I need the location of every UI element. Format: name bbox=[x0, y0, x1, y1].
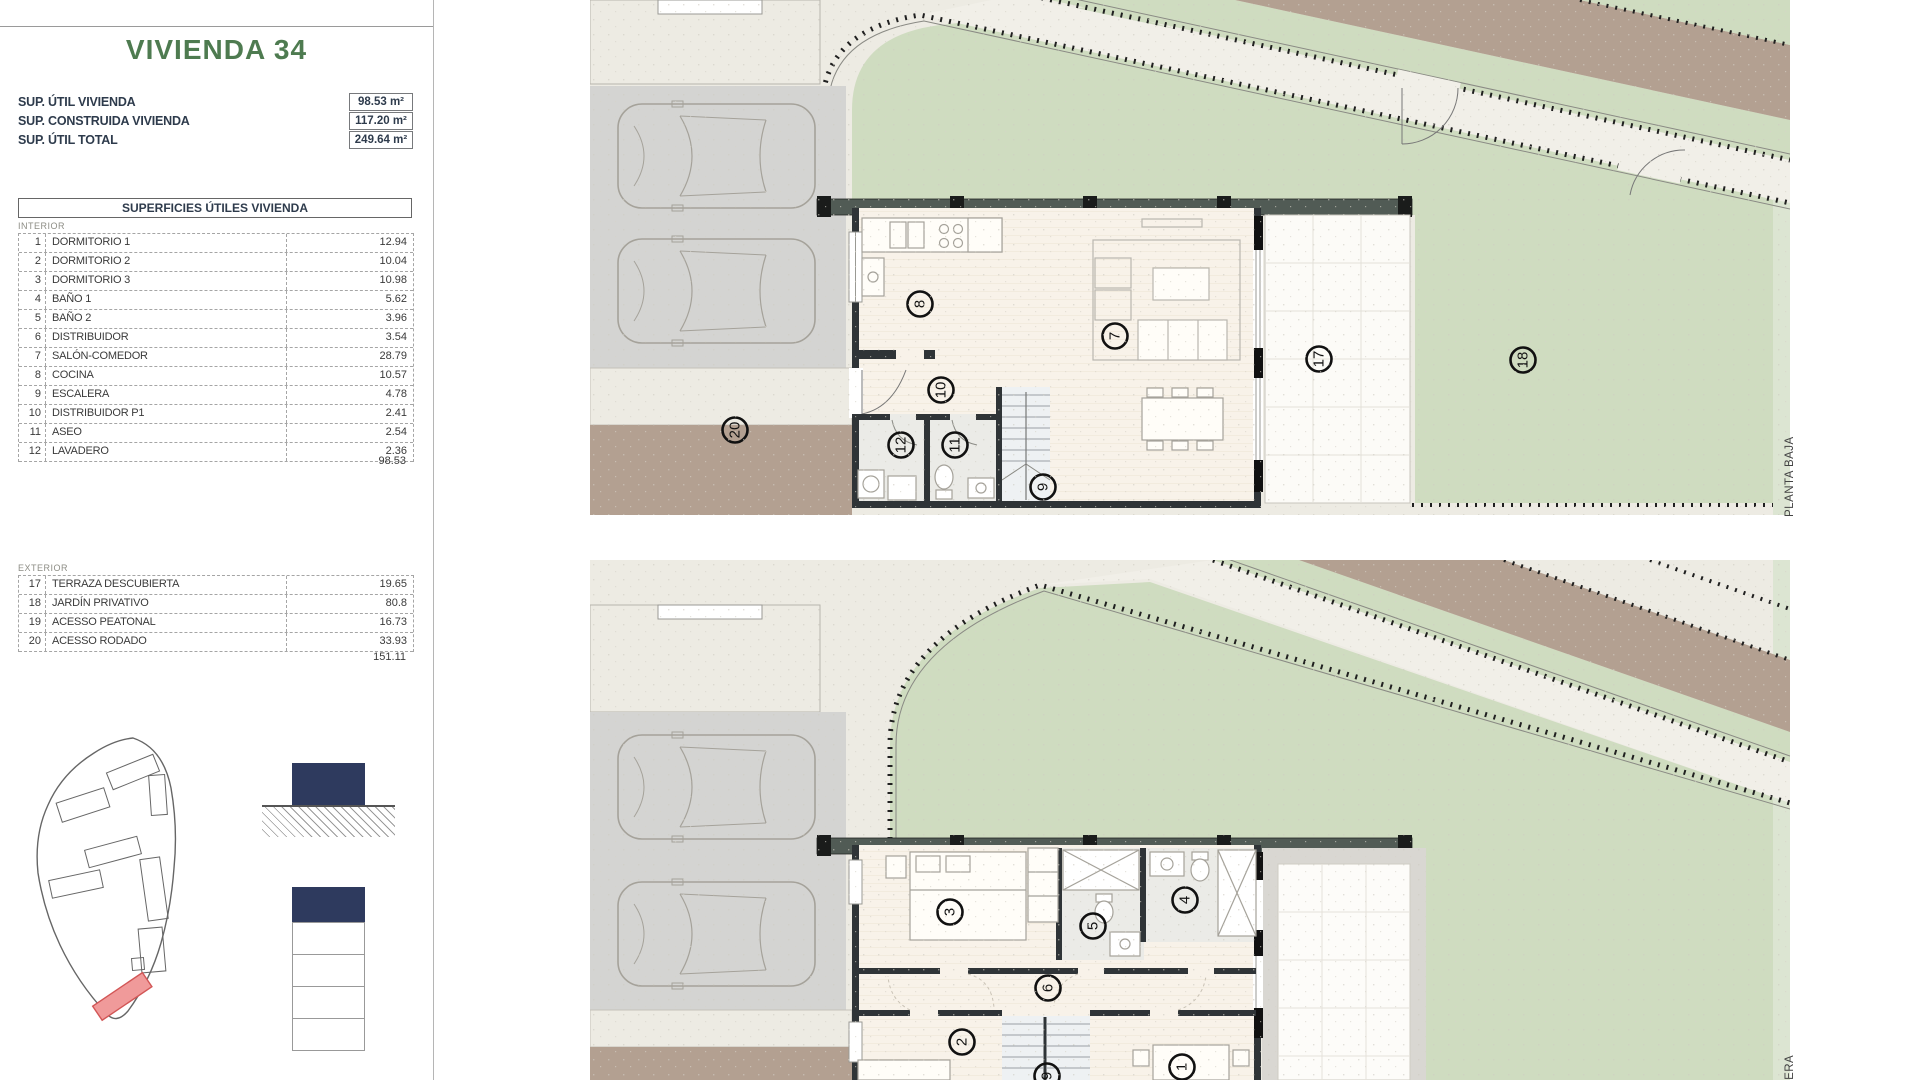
svg-text:17: 17 bbox=[1311, 351, 1328, 368]
svg-text:20: 20 bbox=[727, 422, 744, 439]
summary-label: SUP. ÚTIL VIVIENDA bbox=[18, 95, 136, 109]
table-header: SUPERFICIES ÚTILES VIVIENDA bbox=[18, 198, 412, 218]
plan-sheet: VIVIENDA 34 SUP. ÚTIL VIVIENDA 98.53 m² … bbox=[0, 0, 1920, 1080]
parking-area bbox=[590, 86, 846, 368]
bedroom2-furniture bbox=[858, 1060, 950, 1080]
ground-plan-label: PLANTA BAJA bbox=[1784, 436, 1796, 517]
svg-text:6: 6 bbox=[1040, 984, 1057, 992]
page-title: VIVIENDA 34 bbox=[0, 34, 433, 66]
section-symbol-block bbox=[292, 763, 365, 805]
summary-value-box: 249.64 m² bbox=[349, 131, 413, 149]
table-row: 6DISTRIBUIDOR3.54 bbox=[19, 329, 413, 348]
section-symbol-ground-hatch bbox=[262, 805, 395, 837]
kitchen-door-gap bbox=[896, 350, 924, 359]
dining-set bbox=[1142, 388, 1223, 450]
table-row: 1DORMITORIO 112.94 bbox=[19, 234, 413, 253]
floor-stack-row bbox=[292, 986, 365, 1019]
window bbox=[849, 232, 862, 302]
terrace bbox=[1265, 215, 1410, 503]
table-row: 17TERRAZA DESCUBIERTA19.65 bbox=[19, 576, 413, 595]
table-row: 7SALÓN-COMEDOR28.79 bbox=[19, 348, 413, 367]
interior-table: 1DORMITORIO 112.94 2DORMITORIO 210.04 3D… bbox=[18, 233, 414, 462]
table-row: 3DORMITORIO 310.98 bbox=[19, 272, 413, 291]
interior-section-label: INTERIOR bbox=[18, 221, 65, 231]
panel-divider bbox=[433, 0, 434, 1080]
table-row: 18JARDÍN PRIVATIVO80.8 bbox=[19, 595, 413, 614]
house-ground-floor bbox=[849, 208, 1263, 508]
svg-text:10: 10 bbox=[933, 382, 950, 399]
svg-text:12: 12 bbox=[893, 437, 910, 454]
first-plan-label: MERA bbox=[1784, 1055, 1796, 1080]
table-row: 19ACESSO PEATONAL16.73 bbox=[19, 614, 413, 633]
street-sidewalk-block bbox=[590, 0, 820, 88]
summary-row: SUP. ÚTIL TOTAL 249.64 m² bbox=[18, 131, 418, 149]
floor-stack-row bbox=[292, 922, 365, 955]
kitchen-sink-unit bbox=[862, 258, 884, 296]
terrace-below bbox=[1262, 848, 1426, 1080]
svg-text:4: 4 bbox=[1177, 896, 1194, 904]
floor-stack-row bbox=[292, 954, 365, 987]
pedestrian-access-strip bbox=[590, 368, 852, 425]
driveway-access bbox=[590, 425, 852, 515]
svg-text:2: 2 bbox=[954, 1038, 971, 1046]
svg-text:8: 8 bbox=[912, 300, 929, 308]
street-sidewalk-block bbox=[590, 605, 820, 712]
floor-stack-row bbox=[292, 1018, 365, 1051]
driveway-access bbox=[590, 1047, 852, 1080]
panel-top-rule bbox=[0, 26, 433, 27]
pedestrian-access-strip bbox=[590, 1010, 852, 1047]
summary-row: SUP. CONSTRUIDA VIVIENDA 117.20 m² bbox=[18, 112, 418, 130]
edge-green-strip bbox=[1773, 560, 1790, 1080]
svg-text:18: 18 bbox=[1515, 352, 1532, 369]
interior-total: 98.53 bbox=[18, 455, 412, 467]
floor-stack-highlight bbox=[292, 887, 365, 922]
svg-text:1: 1 bbox=[1174, 1063, 1191, 1071]
table-row: 11ASEO2.54 bbox=[19, 424, 413, 443]
exterior-table: 17TERRAZA DESCUBIERTA19.65 18JARDÍN PRIV… bbox=[18, 575, 414, 652]
summary-label: SUP. ÚTIL TOTAL bbox=[18, 133, 118, 147]
table-row: 2DORMITORIO 210.04 bbox=[19, 253, 413, 272]
svg-text:9: 9 bbox=[1039, 1072, 1056, 1080]
table-row: 4BAÑO 15.62 bbox=[19, 291, 413, 310]
svg-text:3: 3 bbox=[942, 908, 959, 916]
table-row: 8COCINA10.57 bbox=[19, 367, 413, 386]
summary-row: SUP. ÚTIL VIVIENDA 98.53 m² bbox=[18, 93, 418, 111]
svg-text:7: 7 bbox=[1107, 332, 1124, 340]
first-floor-plan: 3 5 4 6 2 1 9 bbox=[590, 560, 1790, 1080]
summary-value-box: 98.53 m² bbox=[349, 93, 413, 111]
window bbox=[1253, 216, 1263, 492]
table-row: 10DISTRIBUIDOR P12.41 bbox=[19, 405, 413, 424]
svg-text:9: 9 bbox=[1035, 483, 1052, 491]
exterior-total: 151.11 bbox=[18, 651, 412, 663]
svg-text:5: 5 bbox=[1085, 922, 1102, 930]
house-first-floor bbox=[849, 845, 1263, 1080]
kitchen-counter bbox=[862, 218, 1002, 252]
site-key-map bbox=[28, 733, 188, 1033]
table-row: 9ESCALERA4.78 bbox=[19, 386, 413, 405]
table-row: 20ACESSO RODADO33.93 bbox=[19, 633, 413, 652]
table-row: 5BAÑO 23.96 bbox=[19, 310, 413, 329]
exterior-section-label: EXTERIOR bbox=[18, 563, 68, 573]
parking-area bbox=[590, 712, 846, 1010]
summary-value-box: 117.20 m² bbox=[349, 112, 413, 130]
summary-label: SUP. CONSTRUIDA VIVIENDA bbox=[18, 114, 190, 128]
svg-text:11: 11 bbox=[947, 437, 964, 453]
ground-floor-plan: 8 7 10 12 11 9 17 18 bbox=[590, 0, 1790, 515]
